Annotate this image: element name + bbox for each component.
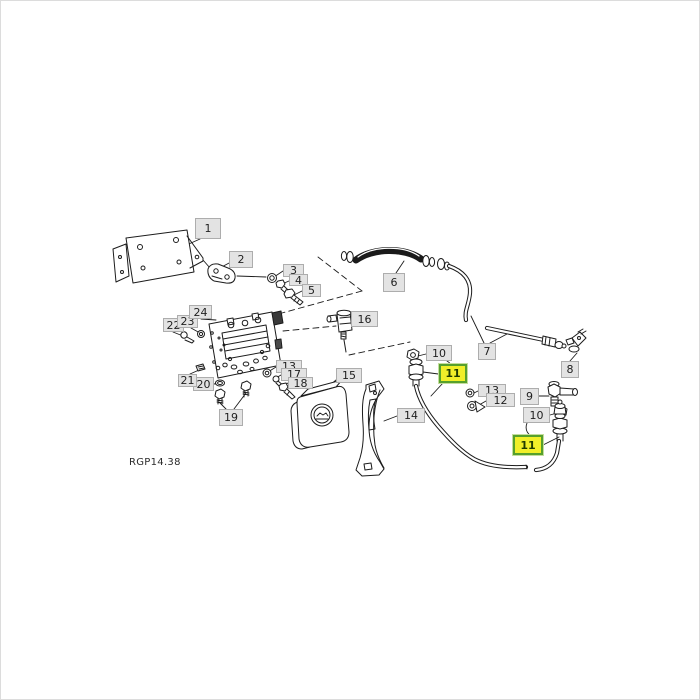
part-callout-10[interactable]: 10 — [523, 407, 550, 423]
part-callout-5[interactable]: 5 — [302, 284, 321, 297]
callout-layer: 1234567891011131210111317181415161920212… — [0, 0, 700, 700]
part-callout-2[interactable]: 2 — [229, 251, 253, 268]
part-callout-12[interactable]: 12 — [486, 393, 515, 407]
figure-code: RGP14.38 — [129, 457, 181, 468]
part-callout-16[interactable]: 16 — [351, 311, 378, 327]
part-callout-19[interactable]: 19 — [219, 409, 243, 426]
part-callout-11-highlighted[interactable]: 11 — [513, 435, 543, 455]
part-callout-11-highlighted[interactable]: 11 — [439, 364, 467, 383]
part-callout-21[interactable]: 21 — [178, 374, 197, 387]
part-callout-10[interactable]: 10 — [426, 345, 452, 361]
part-callout-15[interactable]: 15 — [336, 368, 362, 383]
part-callout-9[interactable]: 9 — [520, 388, 539, 405]
part-callout-7[interactable]: 7 — [478, 343, 496, 360]
part-callout-1[interactable]: 1 — [195, 218, 221, 239]
part-callout-14[interactable]: 14 — [397, 408, 425, 423]
part-callout-8[interactable]: 8 — [561, 361, 579, 378]
part-callout-18[interactable]: 18 — [288, 377, 313, 389]
part-callout-6[interactable]: 6 — [383, 273, 405, 292]
part-callout-24[interactable]: 24 — [189, 305, 212, 319]
parts-diagram-page: 1234567891011131210111317181415161920212… — [0, 0, 700, 700]
